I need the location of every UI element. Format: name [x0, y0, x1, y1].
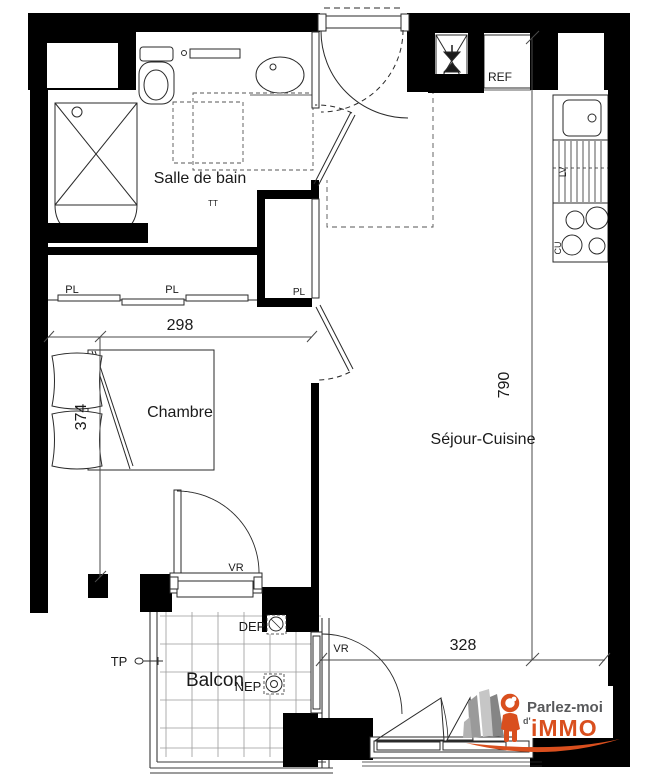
entry-door — [318, 8, 409, 118]
dim-374: 374 — [73, 404, 90, 431]
sejour-balcony-window — [311, 632, 402, 714]
closet-sliding-doors — [48, 295, 257, 305]
kitchen-sink — [563, 100, 601, 136]
room-label-bathroom: Salle de bain — [154, 170, 247, 187]
bathtub — [55, 103, 137, 237]
floor-plan-drawing: Salle de bain Chambre Séjour-Cuisine Bal… — [0, 0, 651, 782]
label-tt: TT — [208, 199, 218, 208]
chambre-door — [316, 305, 353, 380]
label-ref: REF — [488, 70, 512, 84]
room-label-living: Séjour-Cuisine — [431, 431, 536, 448]
sink-drain-icon — [588, 114, 596, 122]
kitchen-counter — [553, 95, 608, 262]
nep-symbol — [264, 674, 284, 694]
bathroom-partition — [312, 32, 319, 108]
washer-dashed-zone — [173, 93, 313, 170]
dim-298: 298 — [167, 317, 194, 334]
tp-symbol — [135, 657, 163, 665]
washbasin — [250, 57, 312, 95]
label-vr-sejour: VR — [333, 643, 348, 655]
label-nep: NEP — [235, 679, 262, 694]
floor-plan-page: Salle de bain Chambre Séjour-Cuisine Bal… — [0, 0, 651, 782]
label-dep: DEP — [239, 619, 266, 634]
label-pl-mid: PL — [165, 284, 178, 296]
dep-symbol — [267, 615, 286, 634]
dim-328: 328 — [450, 637, 477, 654]
chambre-balcony-window — [170, 490, 262, 597]
bathtub-faucet-icon — [72, 107, 82, 117]
room-label-bedroom: Chambre — [147, 404, 213, 421]
dim-790: 790 — [496, 372, 513, 399]
bathroom-shelf — [182, 49, 241, 58]
closet-front — [312, 199, 319, 298]
logo-text-apostrophe: d' — [523, 716, 531, 726]
label-lv: LV — [558, 167, 568, 177]
label-cu: CU — [553, 242, 563, 255]
dimension-lines — [44, 31, 610, 666]
logo-text-line2: iMMO — [531, 715, 598, 741]
kitchen-hob — [562, 207, 608, 255]
label-pl-left: PL — [65, 284, 78, 296]
label-vr-chambre: VR — [228, 562, 243, 574]
logo-buildings-icon — [463, 689, 504, 738]
bathroom-door — [314, 105, 355, 186]
logo-text-line1: Parlez-moi — [527, 699, 603, 716]
label-pl-closet: PL — [293, 287, 306, 298]
label-tp: TP — [111, 654, 128, 669]
toilet — [139, 47, 174, 104]
